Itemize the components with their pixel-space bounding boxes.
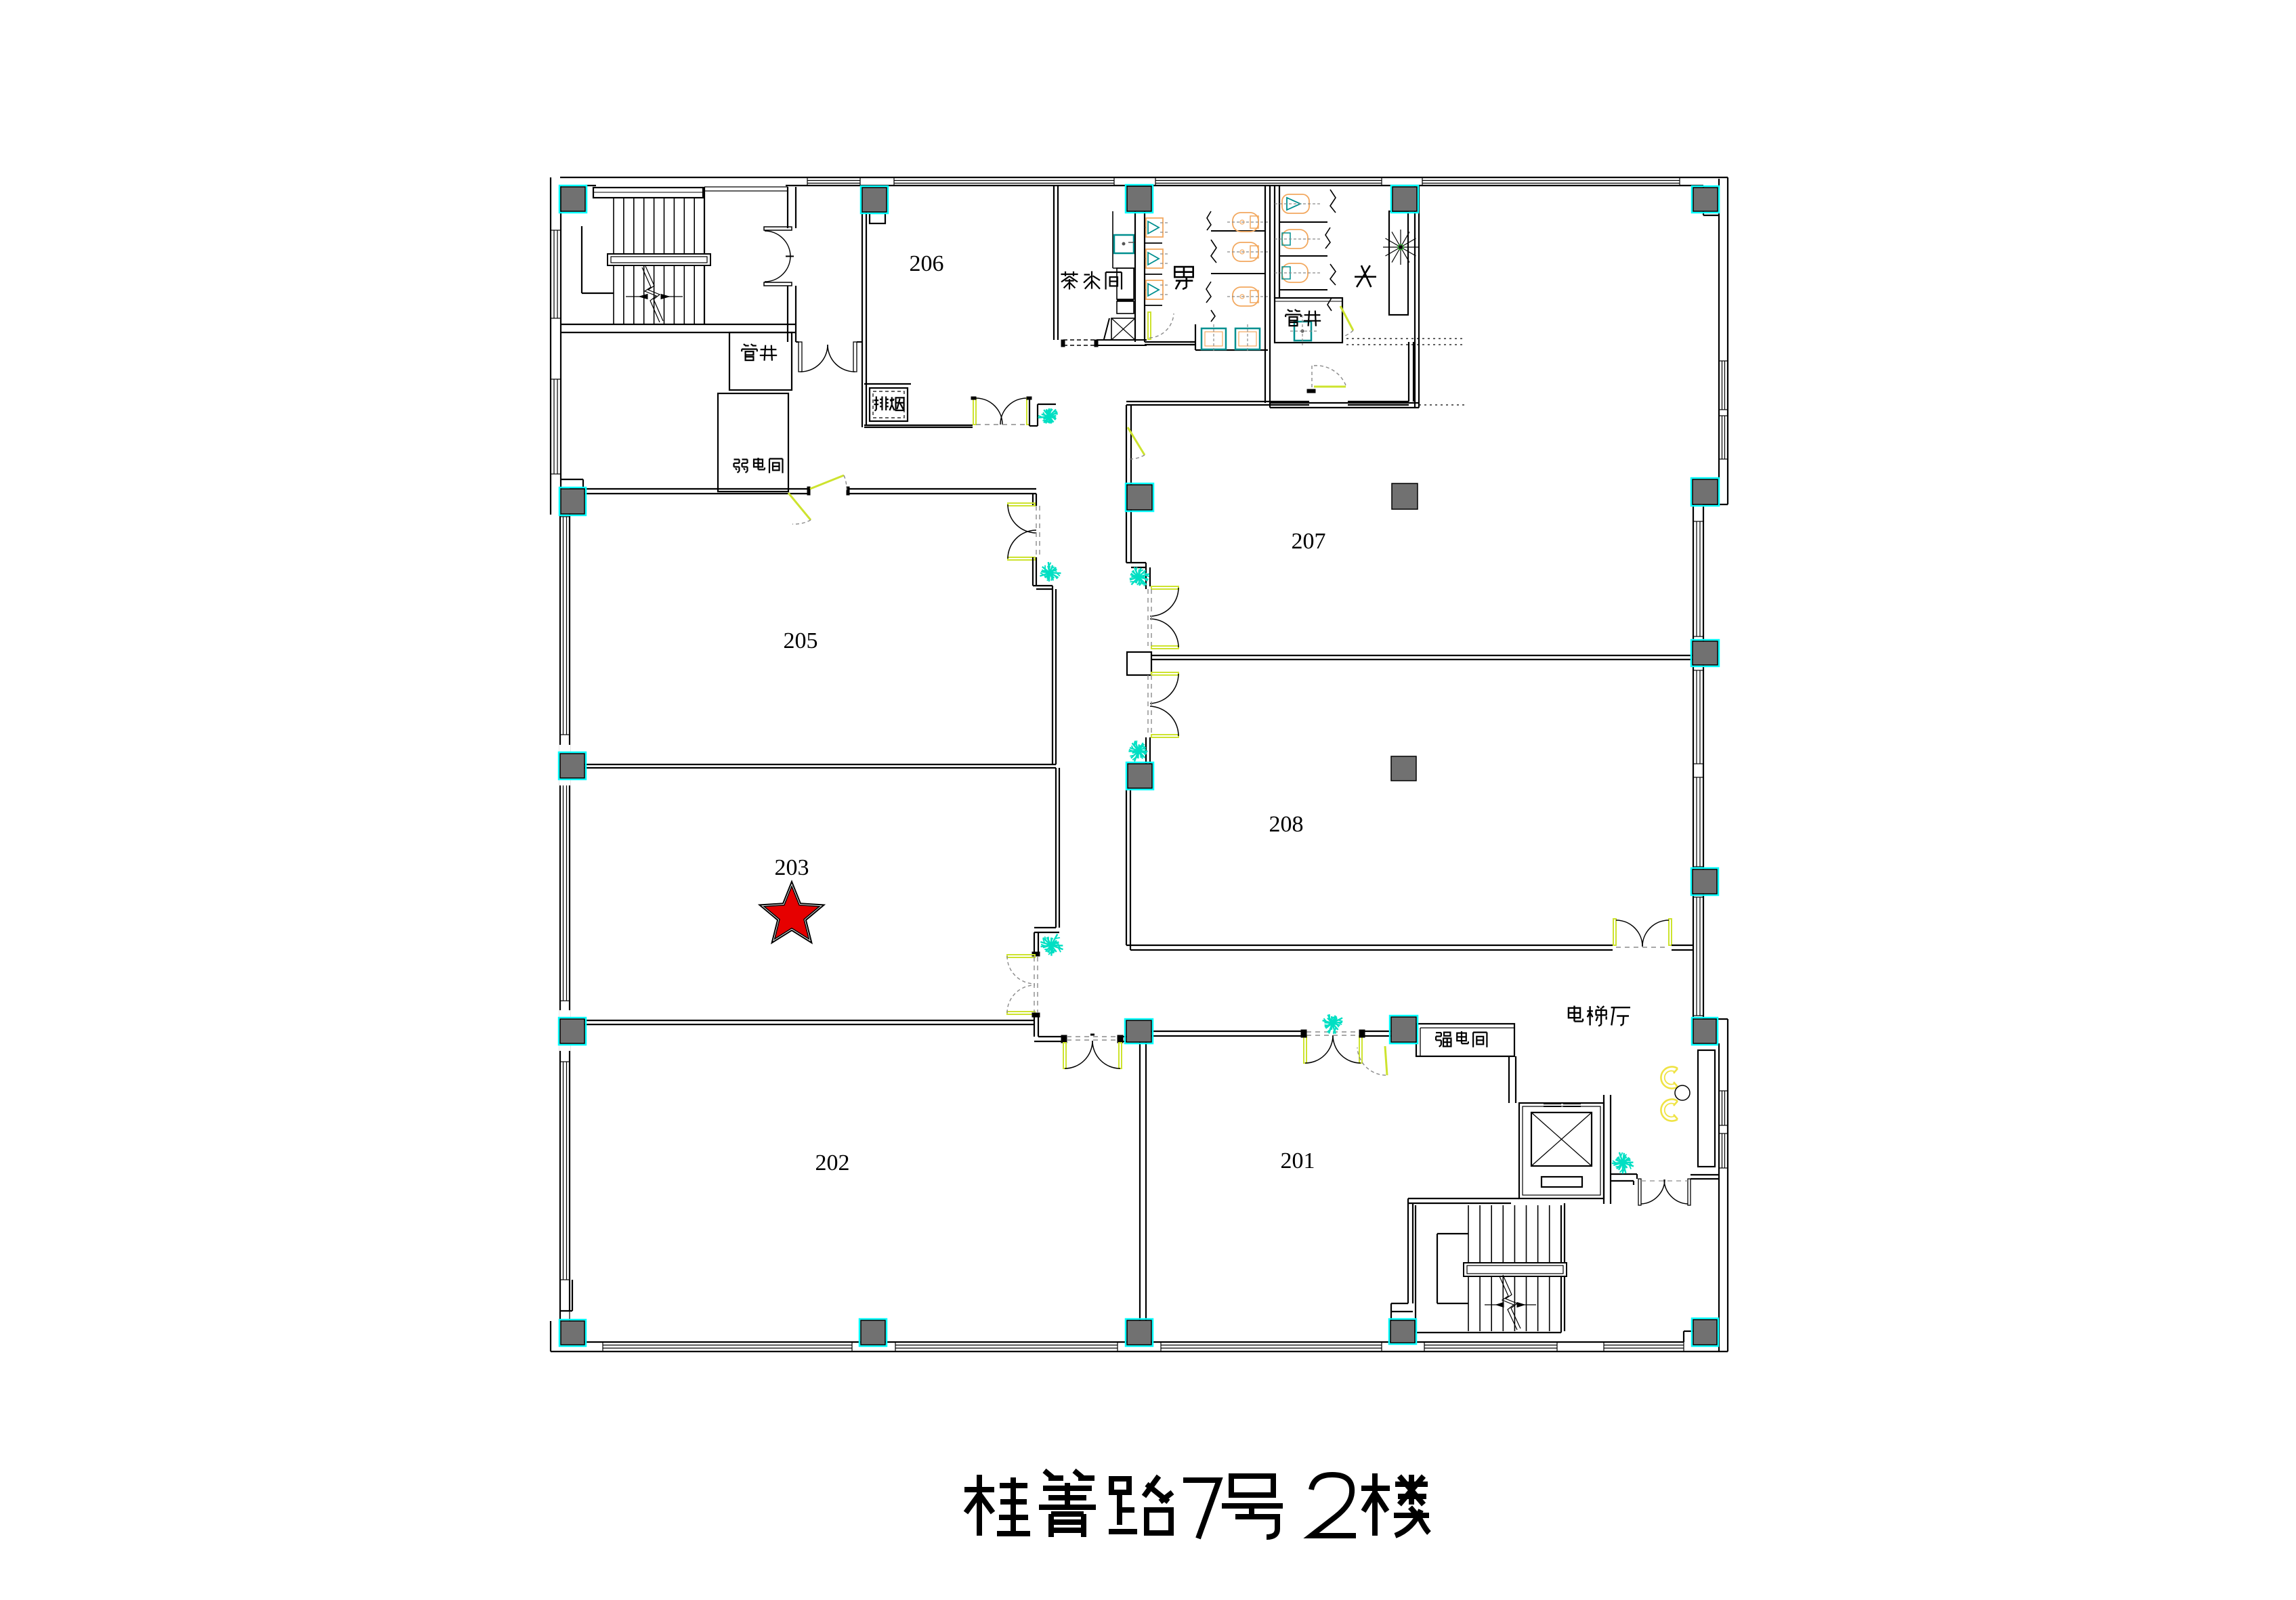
- svg-text:202: 202: [815, 1150, 850, 1175]
- svg-text:207: 207: [1292, 529, 1326, 554]
- svg-text:205: 205: [784, 628, 818, 653]
- svg-text:203: 203: [775, 855, 809, 880]
- svg-text:206: 206: [910, 251, 944, 276]
- svg-text:208: 208: [1269, 812, 1304, 837]
- svg-text:201: 201: [1281, 1148, 1315, 1173]
